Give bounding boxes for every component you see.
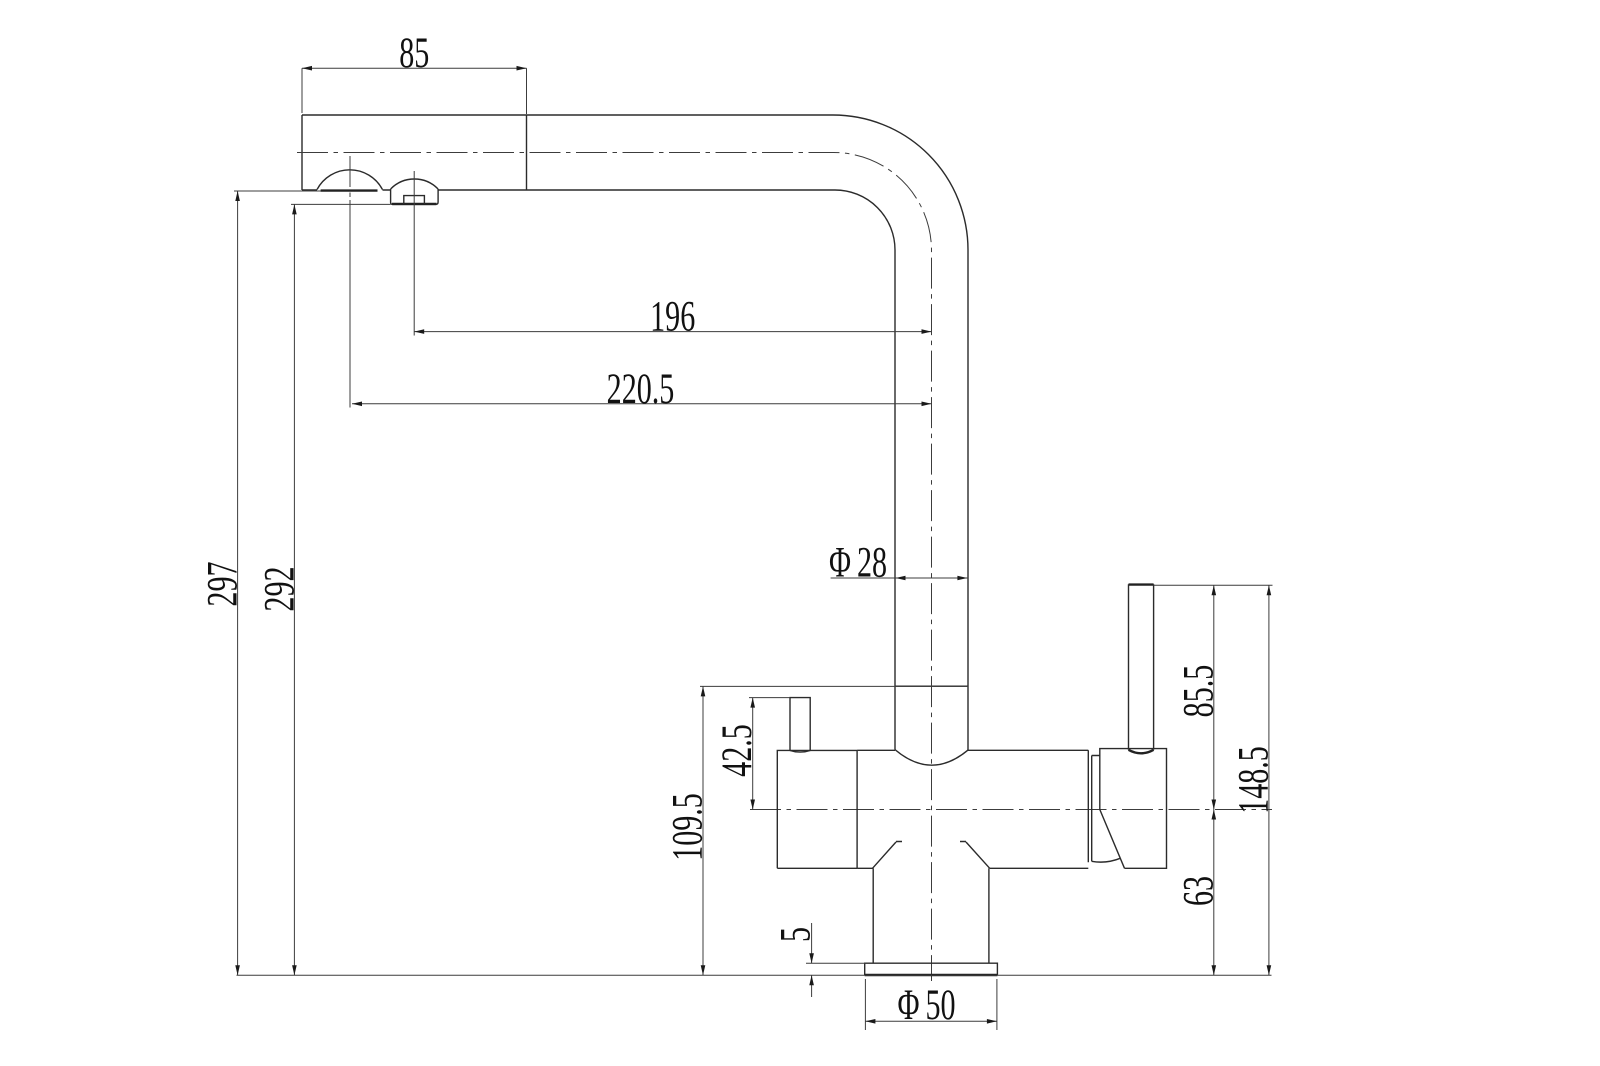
svg-text:196: 196 xyxy=(650,294,695,342)
svg-text:5: 5 xyxy=(772,927,820,942)
svg-text:109.5: 109.5 xyxy=(664,793,712,861)
svg-text:85.5: 85.5 xyxy=(1175,665,1223,718)
svg-text:63: 63 xyxy=(1175,876,1223,906)
svg-text:297: 297 xyxy=(199,561,247,606)
svg-text:Φ 50: Φ 50 xyxy=(897,982,955,1030)
svg-text:148.5: 148.5 xyxy=(1230,746,1278,814)
svg-text:220.5: 220.5 xyxy=(607,366,675,414)
svg-text:85: 85 xyxy=(399,30,429,78)
svg-text:42.5: 42.5 xyxy=(714,724,762,777)
svg-text:Φ 28: Φ 28 xyxy=(829,539,887,587)
svg-text:292: 292 xyxy=(256,566,304,611)
